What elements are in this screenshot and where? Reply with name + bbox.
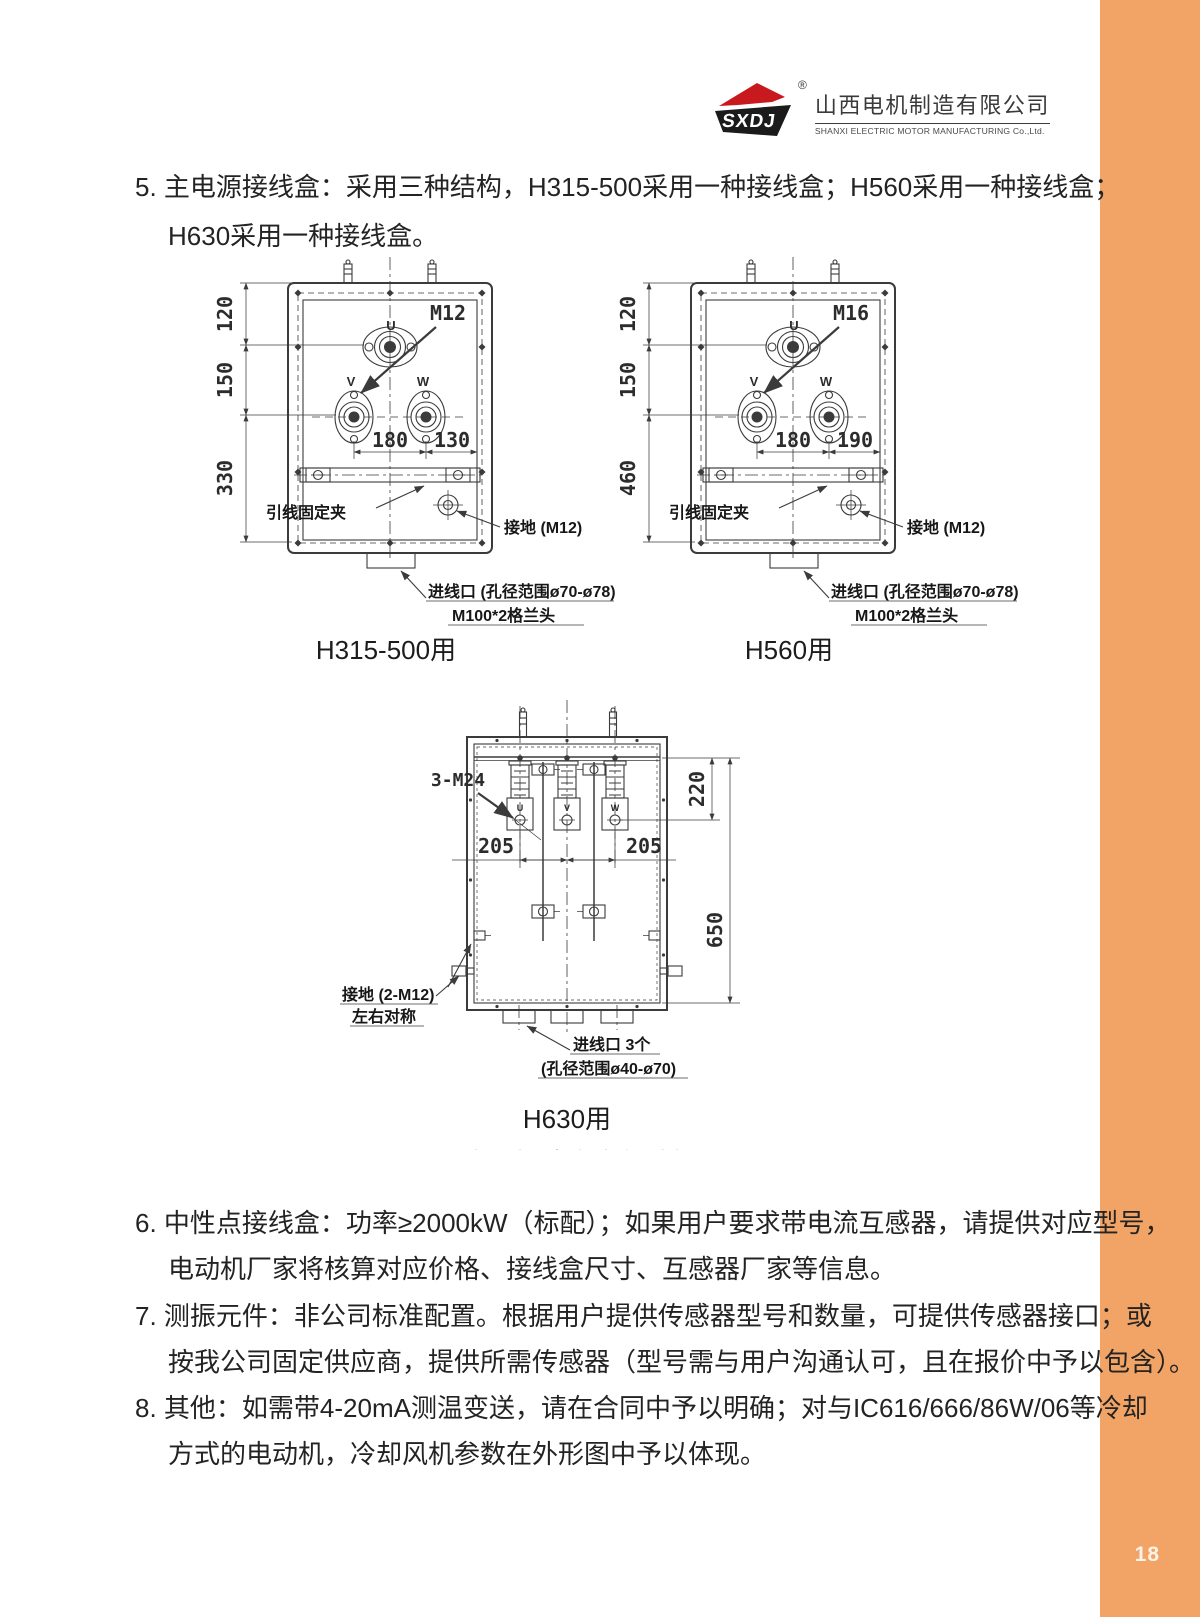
dim-120: 120 xyxy=(616,296,640,332)
item8-line2: 方式的电动机，冷却风机参数在外形图中予以体现。 xyxy=(135,1431,1195,1477)
bolt-size-label: M16 xyxy=(833,301,869,325)
logo-roof-shape xyxy=(719,83,785,106)
dim-180: 180 xyxy=(775,428,811,452)
dim-150: 150 xyxy=(213,362,237,398)
cable-entry xyxy=(770,553,818,568)
ground-label-2: 左右对称 xyxy=(351,1007,416,1026)
document-page: 18 SXDJ ® 山西电机制造有限公司 SHANXI ELECTRIC MOT… xyxy=(0,0,1200,1617)
logo-abbr: SXDJ xyxy=(721,111,778,132)
entry-label-2: (孔径范围ø40-ø70) xyxy=(541,1059,676,1078)
insulator-terminal-u xyxy=(507,761,533,830)
dim-205-left: 205 xyxy=(478,834,514,858)
top-bolt xyxy=(610,708,617,737)
clamp-label: 引线固定夹 xyxy=(266,503,346,522)
top-bolt xyxy=(344,260,352,283)
item6-line1: 6. 中性点接线盒：功率≥2000kW（标配）；如果用户要求带电流互感器，请提供… xyxy=(135,1200,1195,1246)
entry-label-2: M100*2格兰头 xyxy=(855,606,958,625)
item8-line1: 8. 其他：如需带4-20mA测温变送，请在合同中予以明确；对与IC616/66… xyxy=(135,1385,1195,1431)
terminal-v-label: V xyxy=(347,374,356,389)
dim-330: 330 xyxy=(213,460,237,496)
top-bolt xyxy=(747,260,755,283)
diagram-h560: 120 150 460 U M16 xyxy=(616,257,1019,665)
item6-line2: 电动机厂家将核算对应价格、接线盒尺寸、互感器厂家等信息。 xyxy=(135,1246,1195,1292)
junction-box-diagrams: 120 150 330 U M xyxy=(130,245,1080,1150)
top-bolt xyxy=(831,260,839,283)
ground-label: 接地 (M12) xyxy=(907,518,985,537)
insulator-terminal-v xyxy=(554,761,580,830)
ground-label: 接地 (M12) xyxy=(504,518,582,537)
dim-130: 130 xyxy=(434,428,470,452)
diagram-h315-500: 120 150 330 U M xyxy=(213,257,616,665)
terminal-u-label: U xyxy=(517,803,524,813)
ground-label-1: 接地 (2-M12) xyxy=(342,985,434,1004)
dim-460: 460 xyxy=(616,460,640,496)
item5-line1: 5. 主电源接线盒：采用三种结构，H315-500采用一种接线盒；H560采用一… xyxy=(135,163,1120,212)
entry-label-1: 进线口 3个 xyxy=(573,1035,651,1054)
ground-bolt xyxy=(836,490,866,520)
dim-220: 220 xyxy=(685,771,709,807)
dim-190: 190 xyxy=(837,428,873,452)
item7-line1: 7. 测振元件：非公司标准配置。根据用户提供传感器型号和数量，可提供传感器接口；… xyxy=(135,1293,1195,1339)
top-bolt xyxy=(428,260,436,283)
bolt-size-label: M12 xyxy=(430,301,466,325)
clamp-label: 引线固定夹 xyxy=(669,503,749,522)
company-name-en: SHANXI ELECTRIC MOTOR MANUFACTURING Co.,… xyxy=(815,123,1050,136)
terminal-u-label: U xyxy=(789,318,798,333)
caption-h630: H630用 xyxy=(523,1104,611,1134)
sxdj-logo-icon: SXDJ xyxy=(712,80,796,138)
logo-text: 山西电机制造有限公司 SHANXI ELECTRIC MOTOR MANUFAC… xyxy=(815,88,1050,136)
entry-label-1: 进线口 (孔径范围ø70-ø78) xyxy=(428,582,616,601)
dim-120: 120 xyxy=(213,296,237,332)
caption-h560: H560用 xyxy=(745,635,833,665)
terminal-w-label: W xyxy=(417,374,430,389)
cable-entries xyxy=(503,1005,633,1030)
cable-entry xyxy=(367,553,415,568)
terminal-v-label: V xyxy=(564,803,570,813)
entry-label-2: M100*2格兰头 xyxy=(452,606,555,625)
bolt-count-label: 3-M24 xyxy=(431,770,485,791)
registered-mark: ® xyxy=(798,78,807,92)
dim-180: 180 xyxy=(372,428,408,452)
dim-150: 150 xyxy=(616,362,640,398)
page-number: 18 xyxy=(1135,1543,1160,1567)
terminal-u-label: U xyxy=(386,318,395,333)
terminal-w-label: W xyxy=(611,803,620,813)
entry-label-1: 进线口 (孔径范围ø70-ø78) xyxy=(831,582,1019,601)
top-bolt xyxy=(520,708,527,737)
dim-650: 650 xyxy=(703,912,727,948)
terminal-v-label: V xyxy=(750,374,759,389)
paragraphs-items-6-7-8: 6. 中性点接线盒：功率≥2000kW（标配）；如果用户要求带电流互感器，请提供… xyxy=(135,1200,1195,1478)
company-name-cn: 山西电机制造有限公司 xyxy=(815,88,1050,120)
company-logo: SXDJ ® 山西电机制造有限公司 SHANXI ELECTRIC MOTOR … xyxy=(712,80,1050,138)
diagram-h630: U V W xyxy=(340,700,740,1150)
caption-h315-500: H315-500用 xyxy=(316,635,456,665)
item7-line2: 按我公司固定供应商，提供所需传感器（型号需与用户沟通认可，且在报价中予以包含）。 xyxy=(135,1339,1195,1385)
diagram-subtitle: 主电源接线盒内部结构 xyxy=(437,1148,697,1150)
dim-205-right: 205 xyxy=(626,834,662,858)
ground-bolt xyxy=(433,490,463,520)
terminal-w-label: W xyxy=(820,374,833,389)
